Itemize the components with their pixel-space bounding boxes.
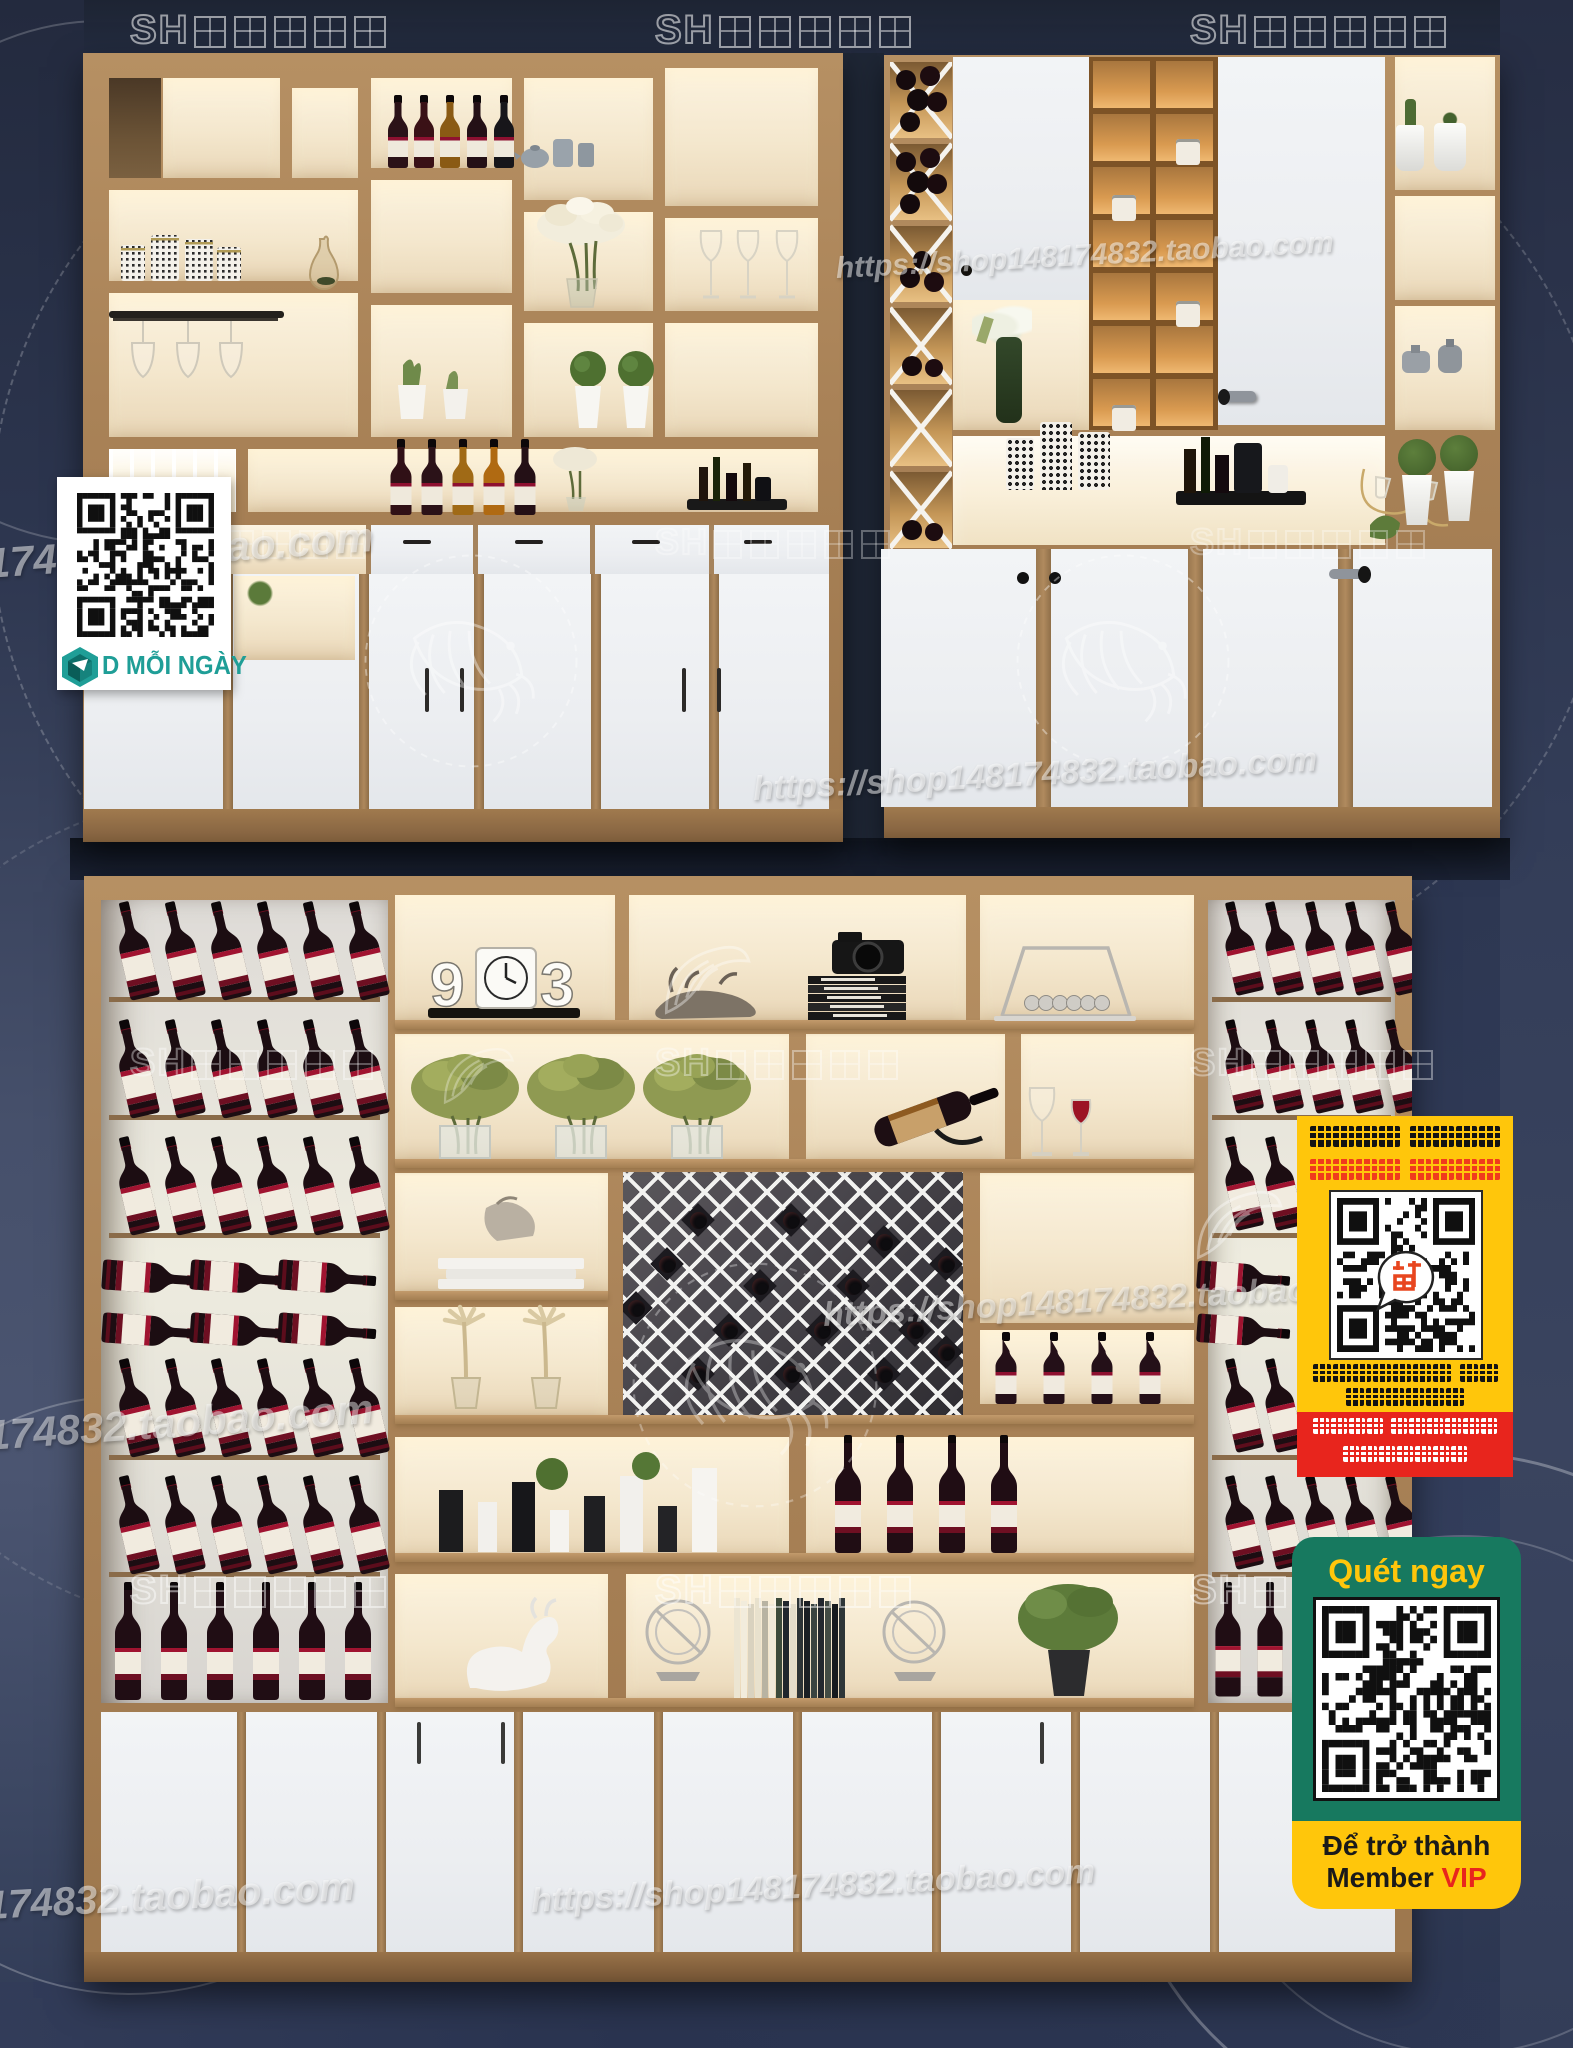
svg-text:3: 3 <box>540 951 574 1020</box>
svg-text:9: 9 <box>430 951 464 1020</box>
